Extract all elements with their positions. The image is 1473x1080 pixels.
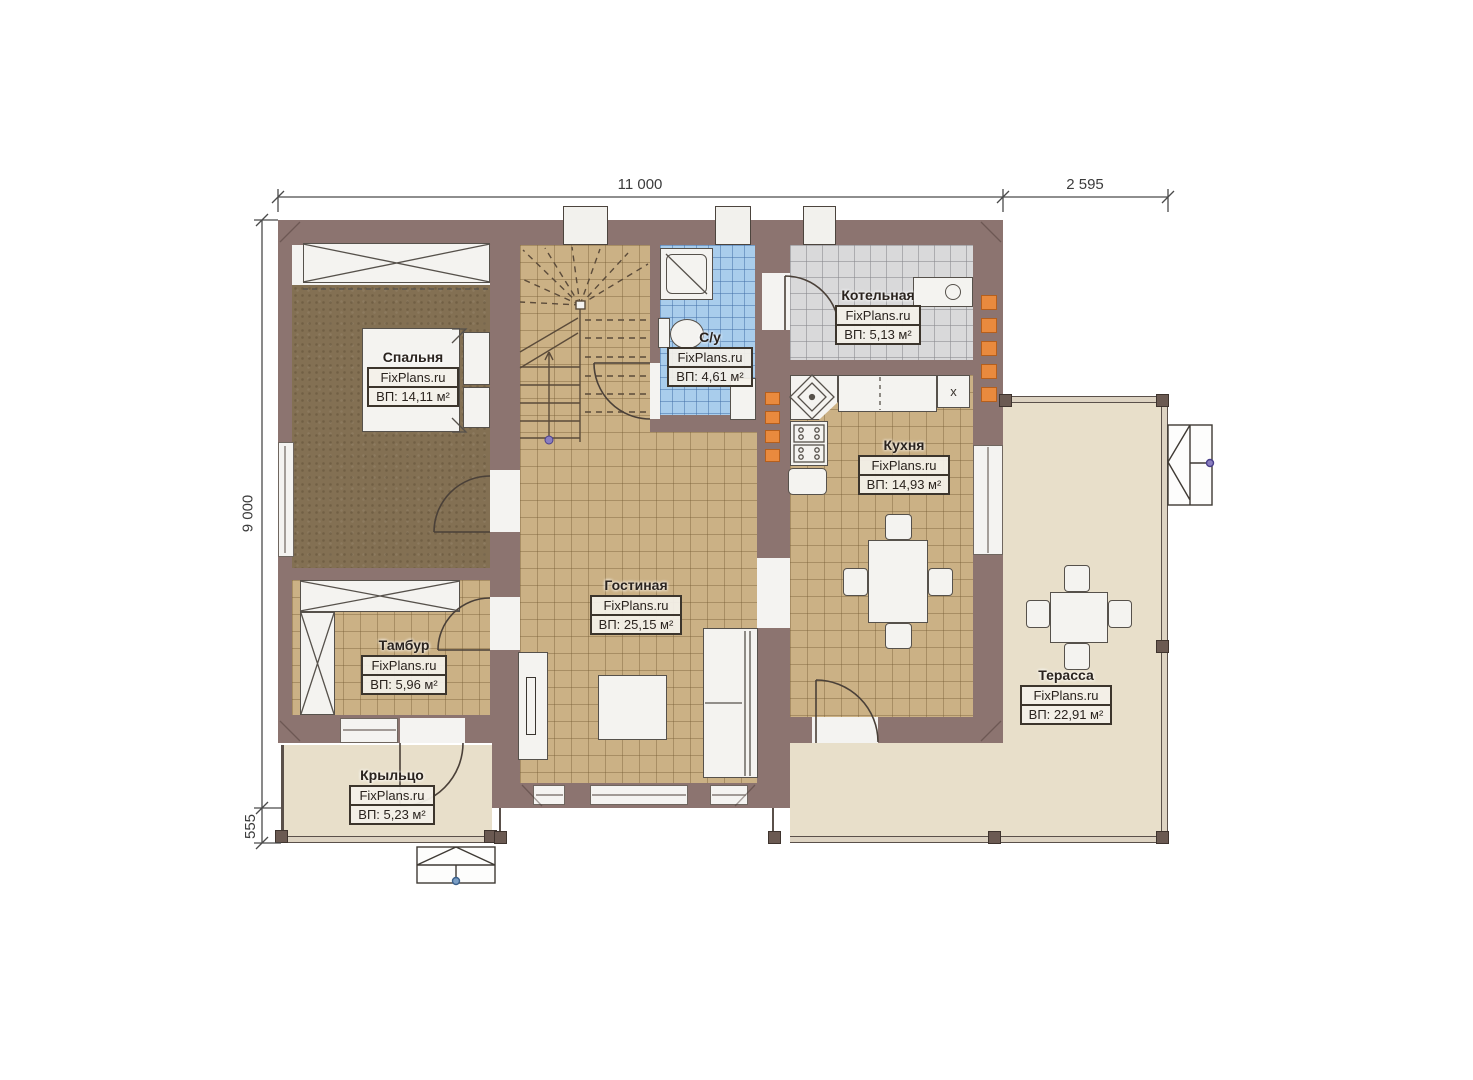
shower-tray-inner: [666, 254, 707, 294]
wall-vent: [981, 295, 997, 310]
room-name: Тамбур: [379, 637, 430, 653]
room-area-text: ВП: 14,93 м²: [860, 474, 949, 493]
room-name: Кухня: [884, 437, 925, 453]
watermark-text: FixPlans.ru: [369, 369, 457, 386]
floor-plan-canvas: x: [0, 0, 1473, 1080]
room-area-text: ВП: 4,61 м²: [669, 366, 750, 385]
railing-post: [1156, 640, 1169, 653]
room-label-box: FixPlans.ru ВП: 5,23 м²: [349, 785, 434, 825]
room-area-text: ВП: 5,23 м²: [351, 804, 432, 823]
room-name: Котельная: [841, 287, 914, 303]
room-name: Терасса: [1038, 667, 1094, 683]
porch-edge-left: [281, 745, 284, 840]
railing-post: [1156, 831, 1169, 844]
room-label-box: FixPlans.ru ВП: 5,96 м²: [361, 655, 446, 695]
living-window-3: [710, 785, 748, 805]
terrace-railing-top: [1003, 396, 1168, 403]
vestibule-wardrobe-top: [300, 580, 460, 612]
dimension-top-width: 11 000: [560, 176, 720, 193]
wall-stub-terrace-left: [757, 743, 790, 808]
sofa: [703, 628, 758, 778]
room-area-text: ВП: 22,91 м²: [1022, 704, 1111, 723]
bathroom-door-opening: [650, 363, 660, 419]
canopy-support-group: [500, 808, 773, 831]
terrace-chair: [1064, 643, 1090, 670]
room-label-vestibule: Тамбур FixPlans.ru ВП: 5,96 м²: [356, 637, 452, 695]
vestibule-wardrobe-left: [300, 612, 335, 715]
wall-vent: [981, 364, 997, 379]
vent-stack-2: [715, 206, 751, 245]
watermark-text: FixPlans.ru: [592, 597, 681, 614]
watermark-text: FixPlans.ru: [363, 657, 444, 674]
watermark-text: FixPlans.ru: [1022, 687, 1111, 704]
kitchen-terrace-door-opening: [812, 717, 878, 743]
room-area-text: ВП: 5,13 м²: [837, 324, 918, 343]
terrace-floor-south: [790, 743, 1003, 836]
dining-chair: [885, 623, 912, 649]
room-label-box: FixPlans.ru ВП: 5,13 м²: [835, 305, 920, 345]
room-label-boiler-room: Котельная FixPlans.ru ВП: 5,13 м²: [830, 287, 926, 345]
front-door-opening: [400, 718, 465, 743]
room-name: С/у: [699, 329, 721, 345]
dimension-terrace-width: 2 595: [1035, 176, 1135, 193]
dining-table: [868, 540, 928, 623]
terrace-railing-bottom: [790, 836, 1168, 843]
living-kitchen-opening: [757, 558, 790, 628]
watermark-text: FixPlans.ru: [860, 457, 949, 474]
room-label-bathroom: С/у FixPlans.ru ВП: 4,61 м²: [662, 329, 758, 387]
terrace-railing-right: [1161, 396, 1168, 843]
room-name: Спальня: [383, 349, 443, 365]
wall-vent: [981, 318, 997, 333]
kitchen-cabinet-x: x: [937, 375, 970, 408]
kitchen-window-right: [973, 445, 1003, 555]
wall-vent: [981, 341, 997, 356]
living-window-2: [590, 785, 688, 805]
kitchen-stove: [790, 421, 828, 466]
bedroom-window-left: [278, 442, 294, 557]
room-label-box: FixPlans.ru ВП: 14,11 м²: [367, 367, 459, 407]
room-name: Гостиная: [604, 577, 667, 593]
living-window-1: [533, 785, 565, 805]
railing-post: [1156, 394, 1169, 407]
wall-vent: [765, 392, 780, 405]
vent-stack-1: [563, 206, 608, 245]
room-area-text: ВП: 25,15 м²: [592, 614, 681, 633]
stair-hall-floor: [520, 245, 652, 432]
terrace-steps-icon: [1168, 425, 1214, 505]
vestibule-door-opening: [490, 597, 520, 650]
room-label-living-room: Гостиная FixPlans.ru ВП: 25,15 м²: [584, 577, 688, 635]
room-label-porch: Крыльцо FixPlans.ru ВП: 5,23 м²: [344, 767, 440, 825]
wall-vent: [765, 449, 780, 462]
coffee-table: [598, 675, 667, 740]
wall-vent: [765, 411, 780, 424]
room-label-box: FixPlans.ru ВП: 4,61 м²: [667, 347, 752, 387]
kitchen-cabinet-x-label: x: [950, 384, 957, 399]
railing-post: [275, 830, 288, 843]
room-label-box: FixPlans.ru ВП: 22,91 м²: [1020, 685, 1113, 725]
wall-vent: [981, 387, 997, 402]
terrace-chair: [1064, 565, 1090, 592]
vent-stack-3: [803, 206, 836, 245]
terrace-table: [1050, 592, 1108, 643]
dimension-porch-depth: 555: [242, 804, 259, 849]
railing-post: [988, 831, 1001, 844]
porch-railing-bottom: [281, 836, 492, 843]
dining-chair: [928, 568, 953, 596]
dining-chair: [843, 568, 868, 596]
dimension-left-height: 9 000: [240, 484, 257, 544]
room-label-box: FixPlans.ru ВП: 25,15 м²: [590, 595, 683, 635]
kitchen-counter: [838, 375, 937, 412]
railing-post: [494, 831, 507, 844]
porch-steps-icon: [417, 847, 495, 885]
boiler-kitchen-wall: [790, 360, 973, 375]
watermark-text: FixPlans.ru: [351, 787, 432, 804]
room-label-box: FixPlans.ru ВП: 14,93 м²: [858, 455, 951, 495]
dining-chair: [885, 514, 912, 540]
room-label-bedroom: Спальня FixPlans.ru ВП: 14,11 м²: [358, 349, 468, 407]
vestibule-window: [340, 718, 398, 743]
bedroom-wardrobe: [303, 243, 490, 283]
bedroom-door-opening: [490, 470, 520, 532]
wall-vent: [765, 430, 780, 443]
terrace-chair: [1026, 600, 1050, 628]
railing-post: [999, 394, 1012, 407]
railing-post: [768, 831, 781, 844]
room-area-text: ВП: 5,96 м²: [363, 674, 444, 693]
room-label-terrace: Терасса FixPlans.ru ВП: 22,91 м²: [1014, 667, 1118, 725]
watermark-text: FixPlans.ru: [669, 349, 750, 366]
room-label-kitchen: Кухня FixPlans.ru ВП: 14,93 м²: [852, 437, 956, 495]
terrace-chair: [1108, 600, 1132, 628]
boiler-burner-circle: [945, 284, 961, 300]
room-area-text: ВП: 14,11 м²: [369, 386, 457, 405]
tv-screen: [526, 677, 536, 735]
watermark-text: FixPlans.ru: [837, 307, 918, 324]
wall-stub-porch-right: [492, 743, 520, 808]
room-name: Крыльцо: [360, 767, 424, 783]
kitchen-cabinet-low: [788, 468, 827, 495]
corridor-to-boiler-opening: [762, 273, 790, 330]
